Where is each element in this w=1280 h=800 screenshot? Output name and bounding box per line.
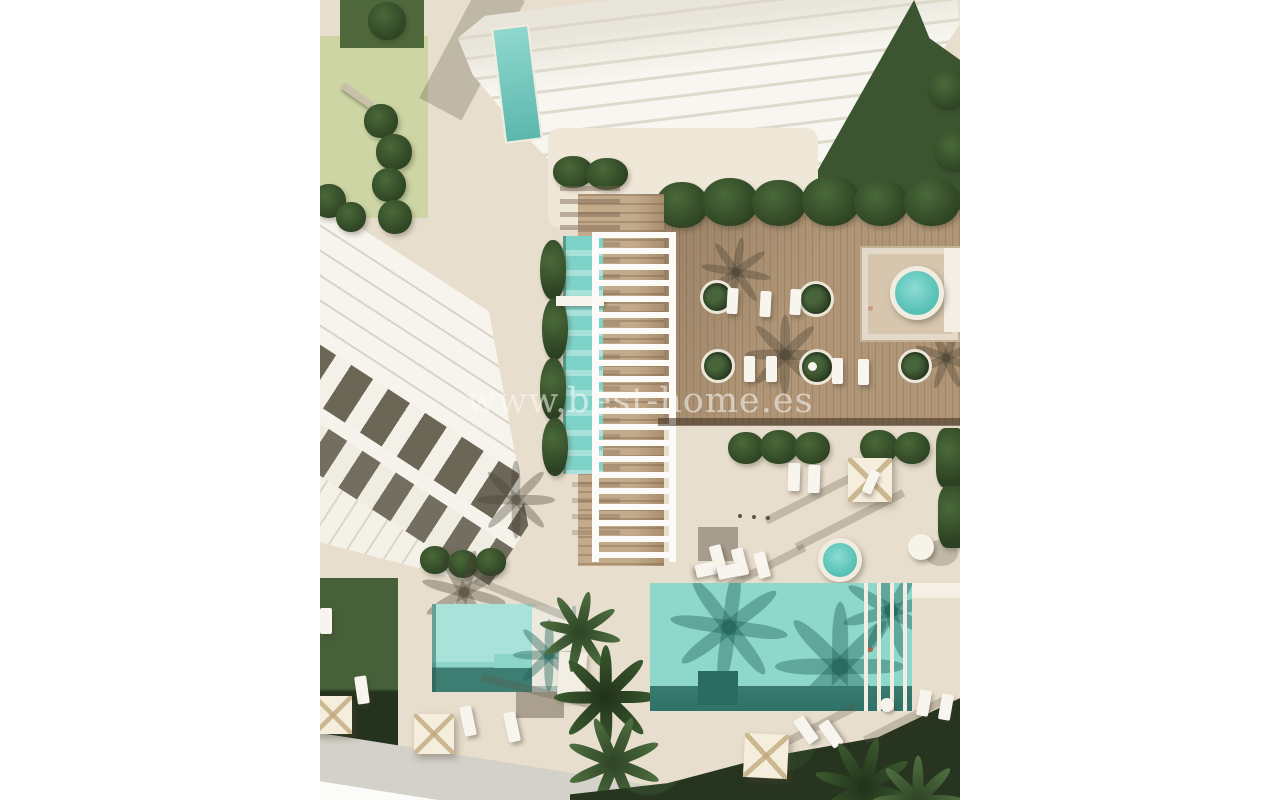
tree-row	[928, 70, 960, 110]
white-wall	[905, 583, 960, 598]
sun-lounger	[726, 288, 738, 315]
tree-row	[372, 168, 406, 202]
shrub-row	[894, 432, 930, 464]
sun-lounger	[808, 465, 821, 493]
swimmer-dot	[868, 647, 873, 652]
sun-lounger	[759, 291, 771, 318]
round-chair	[908, 534, 934, 560]
marker-dots	[738, 514, 742, 518]
aerial-render-scene: www.best-home.es	[320, 0, 960, 800]
square-parasol	[320, 696, 352, 734]
sun-lounger	[766, 356, 777, 382]
hedge-pool-edge	[542, 298, 568, 360]
round-jacuzzi	[890, 266, 944, 320]
sun-lounger	[744, 356, 755, 382]
deck-edge-shadow	[658, 418, 960, 426]
canopy-trees	[854, 180, 908, 226]
sun-lounger	[832, 358, 843, 384]
marker-dots	[752, 515, 756, 519]
sun-lounger	[320, 608, 332, 634]
canopy-trees	[802, 176, 860, 226]
sun-lounger	[788, 463, 801, 491]
tree-row	[364, 104, 398, 138]
sun-lounger	[858, 359, 869, 385]
hedge-pool-edge	[540, 358, 566, 420]
circular-planter	[798, 281, 834, 317]
pool-step	[698, 671, 738, 705]
pergola-walkway	[592, 232, 676, 562]
sun-lounger	[789, 289, 801, 316]
side-table	[808, 362, 817, 371]
tree-row	[376, 134, 412, 170]
perimeter-grass	[936, 428, 960, 488]
shrub-row	[794, 432, 830, 464]
canopy-trees	[904, 178, 960, 226]
roof-trees	[336, 202, 366, 232]
palm-shadow	[674, 583, 784, 679]
round-table	[880, 698, 894, 712]
square-parasol	[743, 733, 789, 779]
platform-wall	[944, 248, 960, 332]
main-swimming-pool	[650, 583, 912, 711]
perimeter-grass	[938, 486, 960, 548]
tree-row	[378, 200, 412, 234]
round-spa	[818, 538, 862, 582]
square-parasol	[414, 714, 454, 754]
circular-planter	[898, 349, 932, 383]
marker-dots	[766, 516, 770, 520]
tree-row	[368, 2, 406, 40]
hedge-pool-edge	[542, 418, 568, 476]
palm-shadow	[480, 462, 552, 534]
pergola-shadow	[560, 186, 620, 238]
circular-planter	[799, 349, 835, 385]
canopy-trees	[702, 178, 758, 226]
sun-lounger	[459, 705, 477, 737]
palm-tree	[876, 756, 960, 800]
circular-planter	[701, 349, 735, 383]
hedge-pool-edge	[540, 240, 566, 300]
shrub-row	[728, 432, 764, 464]
canopy-trees	[752, 180, 806, 226]
person-dot	[868, 306, 873, 311]
render-canvas: www.best-home.es	[0, 0, 1280, 800]
shrub-row	[760, 430, 798, 464]
